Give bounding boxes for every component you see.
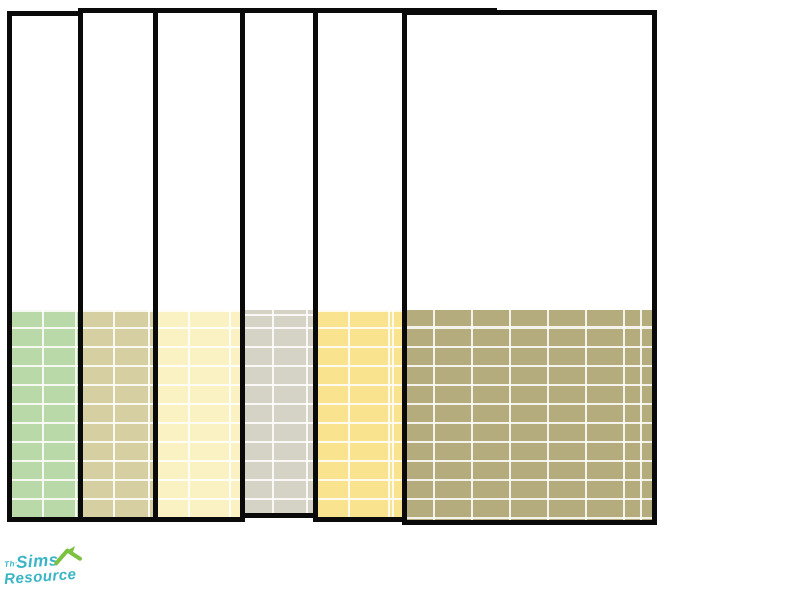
wallpaper-swatch-6 — [402, 10, 657, 525]
wallpaper-swatch-2 — [78, 8, 158, 522]
tile-area-1 — [12, 310, 78, 517]
wallpaper-swatch-1 — [7, 11, 83, 522]
tile-area-6 — [407, 310, 652, 520]
roof-line — [55, 550, 80, 564]
tile-area-3 — [158, 310, 240, 517]
tile-area-2 — [83, 310, 153, 517]
tile-area-4 — [245, 310, 313, 513]
tile-area-5 — [318, 310, 402, 517]
preview-canvas: { "panels": { "border_color": "#0a0a0a",… — [0, 0, 800, 600]
tsr-logo-resource: Resource — [4, 566, 77, 588]
wallpaper-swatch-3 — [153, 8, 245, 522]
top-border-step — [402, 8, 497, 15]
wallpaper-swatch-4 — [240, 8, 318, 518]
tsr-logo: The Sims Resource — [2, 550, 93, 600]
roof-swoosh-icon — [53, 544, 86, 568]
wallpaper-swatch-5 — [313, 8, 407, 522]
